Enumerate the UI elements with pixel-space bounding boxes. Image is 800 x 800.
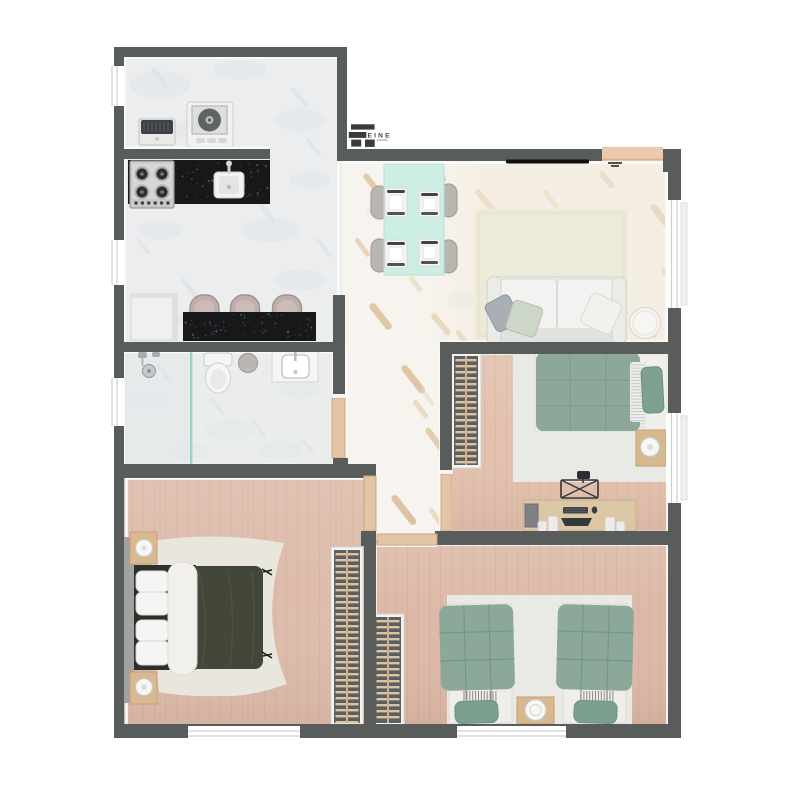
svg-text:EINE: EINE — [368, 132, 392, 139]
